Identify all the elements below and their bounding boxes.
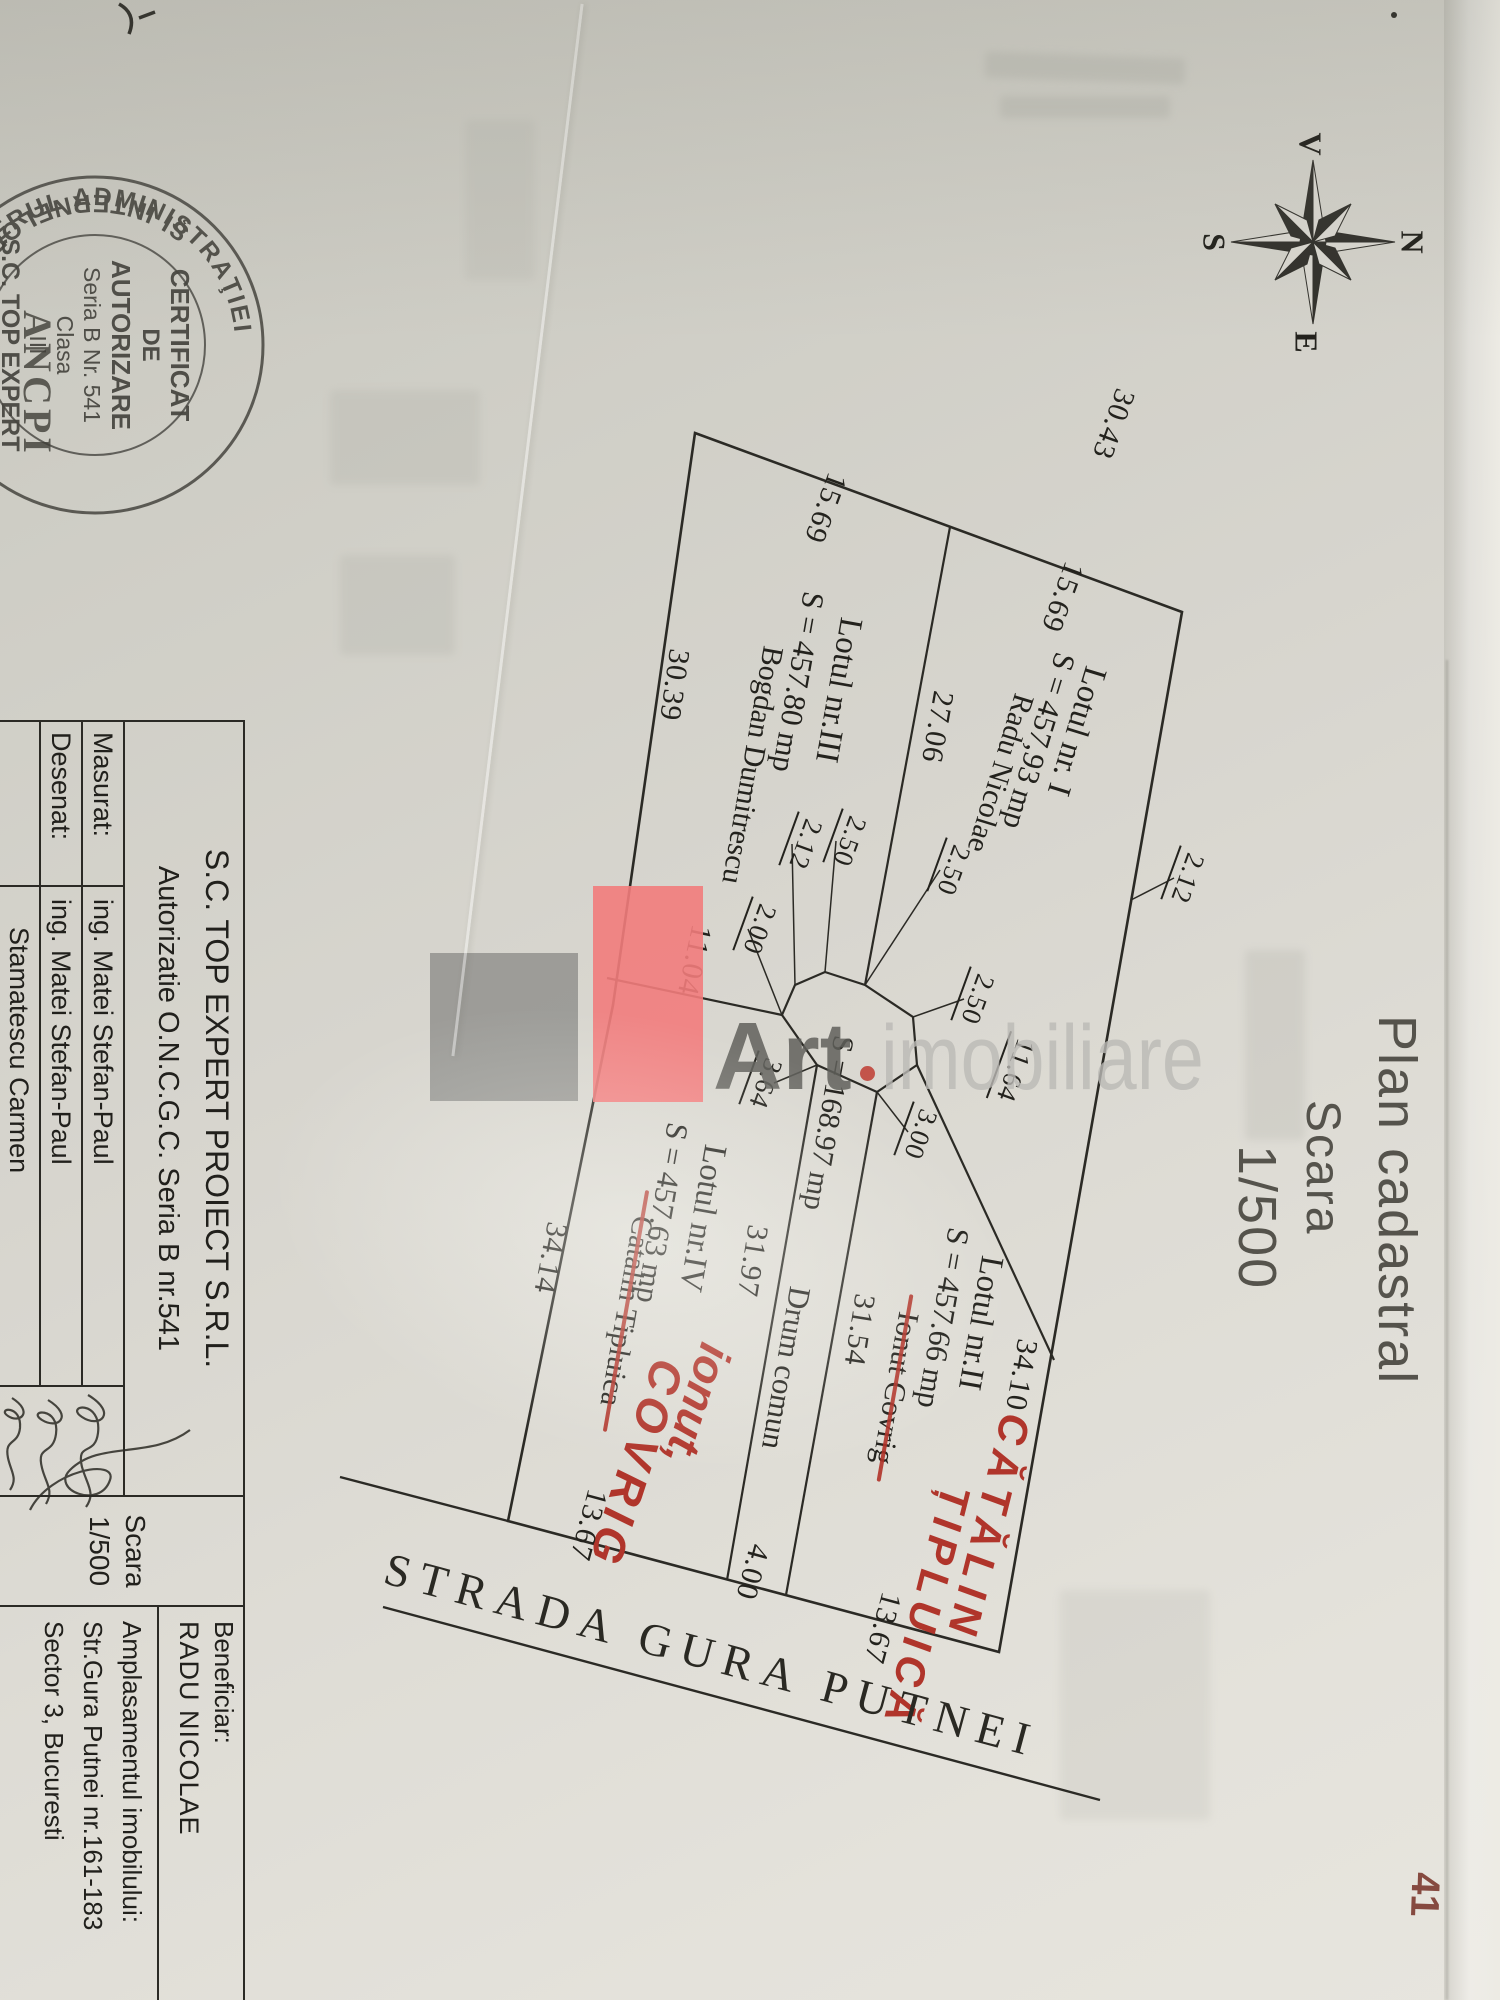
top-edge-pen-mark — [105, 0, 185, 50]
company-name: S.C. TOP EXPERT PROIECT S.R.L. — [198, 722, 243, 1495]
scale-value: 1/500 — [83, 1497, 119, 1605]
location-cell: Amplasamentul imobilului: Str.Gura Putne… — [0, 1607, 157, 2000]
location-label: Amplasamentul imobilului: — [116, 1607, 157, 2000]
watermark-gray-square — [430, 953, 578, 1101]
title-block-table: S.C. TOP EXPERT PROIECT S.R.L. Autorizat… — [0, 720, 245, 2000]
compass-west-label: V — [1292, 132, 1329, 155]
stamp-line2: DE — [136, 210, 164, 480]
plan-scale-label: Scara — [1295, 1100, 1350, 1235]
row3-label — [34, 722, 39, 885]
watermark-dot-icon — [860, 1066, 875, 1081]
row1-label: Masurat: — [87, 722, 123, 885]
location-line2: Sector 3, Bucuresti — [38, 1607, 77, 2000]
corner-scribble: 41 — [1401, 1871, 1448, 1917]
compass-south-label: S — [1196, 233, 1233, 251]
row2-name: ing. Matei Stefan-Paul — [45, 887, 81, 1385]
row1-name: ing. Matei Stefan-Paul — [87, 887, 123, 1385]
beneficiary-label: Beneficiar: — [208, 1607, 243, 2000]
beneficiary-cell: Beneficiar: RADU NICOLAE — [157, 1607, 245, 2000]
watermark-light-text: imobiliare — [881, 1006, 1204, 1111]
watermark-bold-text: Art — [713, 1003, 852, 1110]
stamp-line1: CERTIFICAT — [164, 210, 195, 480]
location-line1: Str.Gura Putnei nr.161-183 — [77, 1607, 116, 2000]
beneficiary-name: RADU NICOLAE — [173, 1607, 208, 2000]
top-right-dot — [1391, 12, 1397, 18]
surveyor-rows: Masurat: ing. Matei Stefan-Paul Desenat:… — [0, 720, 125, 1497]
compass-east-label: E — [1288, 331, 1325, 352]
scale-label: Scara — [119, 1497, 243, 1605]
authorization: Autorizatie O.N.C.G.C. Seria B nr.541 — [151, 722, 198, 1495]
row3-name: Stamatescu Carmen — [3, 887, 39, 1385]
plan-scale-value: 1/500 — [1226, 1145, 1288, 1290]
stamp-line4: Seria B Nr. 541 — [78, 210, 105, 480]
plan-title: Plan cadastral — [1366, 1015, 1428, 1385]
watermark-wordmark: Artimobiliare — [713, 1002, 1274, 1102]
stamp-org-text: ANCPI — [14, 310, 61, 457]
watermark-pink-rect — [593, 886, 703, 1102]
scanned-cadastral-plan: N V E S Plan cadastral Scara 1/500 Lotul… — [0, 0, 1500, 2000]
company-cell: S.C. TOP EXPERT PROIECT S.R.L. Autorizat… — [125, 720, 245, 1497]
scale-cell: Scara 1/500 — [0, 1497, 245, 1607]
row2-label: Desenat: — [45, 722, 81, 885]
compass-north-label: N — [1394, 230, 1431, 253]
compass-rose-icon — [1231, 160, 1395, 324]
stamp-line3: AUTORIZARE — [105, 210, 136, 480]
